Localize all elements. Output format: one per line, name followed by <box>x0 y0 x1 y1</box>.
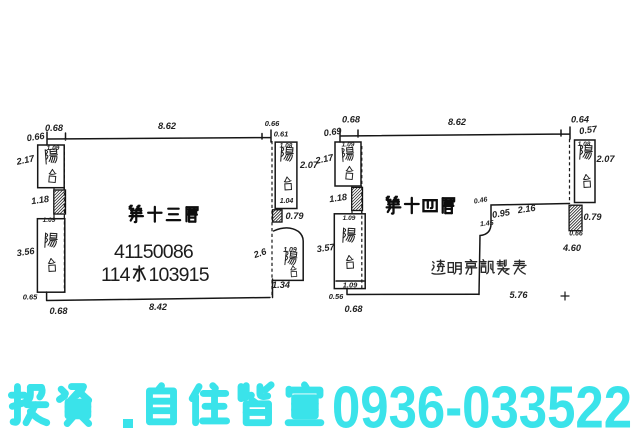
svg-text:1.09: 1.09 <box>343 215 356 222</box>
svg-text:8.42: 8.42 <box>149 302 168 312</box>
svg-text:0.66: 0.66 <box>569 231 583 238</box>
svg-text:1.04: 1.04 <box>280 198 294 205</box>
svg-text:0.68: 0.68 <box>345 304 364 314</box>
svg-text:1.09: 1.09 <box>343 281 358 290</box>
svg-text:41150086: 41150086 <box>114 241 193 263</box>
svg-text:0.56: 0.56 <box>329 292 344 301</box>
svg-text:4.60: 4.60 <box>562 243 582 253</box>
svg-text:0.66: 0.66 <box>265 119 280 128</box>
svg-text:1.45: 1.45 <box>480 220 494 228</box>
svg-text:2.07: 2.07 <box>596 154 616 164</box>
svg-text:0936-033522: 0936-033522 <box>332 375 632 441</box>
svg-text:0.64: 0.64 <box>571 115 589 125</box>
svg-text:0.61: 0.61 <box>274 130 289 139</box>
svg-text:1.09: 1.09 <box>43 217 56 224</box>
svg-text:5.76: 5.76 <box>510 290 529 300</box>
svg-text:1.08: 1.08 <box>280 143 293 150</box>
svg-text:0.79: 0.79 <box>286 211 305 221</box>
svg-text:8.62: 8.62 <box>448 117 467 127</box>
svg-text:1.34: 1.34 <box>272 280 290 290</box>
svg-text:1.08: 1.08 <box>578 141 591 148</box>
svg-text:0.68: 0.68 <box>342 115 361 125</box>
svg-text:103915: 103915 <box>149 264 210 286</box>
svg-text:1.09: 1.09 <box>47 145 60 152</box>
svg-text:114: 114 <box>101 264 131 286</box>
svg-text:1.09: 1.09 <box>283 247 297 254</box>
svg-text:1.09: 1.09 <box>342 142 355 149</box>
svg-text:8.62: 8.62 <box>158 121 177 131</box>
svg-text:0.68: 0.68 <box>50 306 69 316</box>
svg-text:0.79: 0.79 <box>584 212 603 222</box>
svg-text:0.68: 0.68 <box>45 123 64 133</box>
svg-text:0.65: 0.65 <box>23 293 38 302</box>
